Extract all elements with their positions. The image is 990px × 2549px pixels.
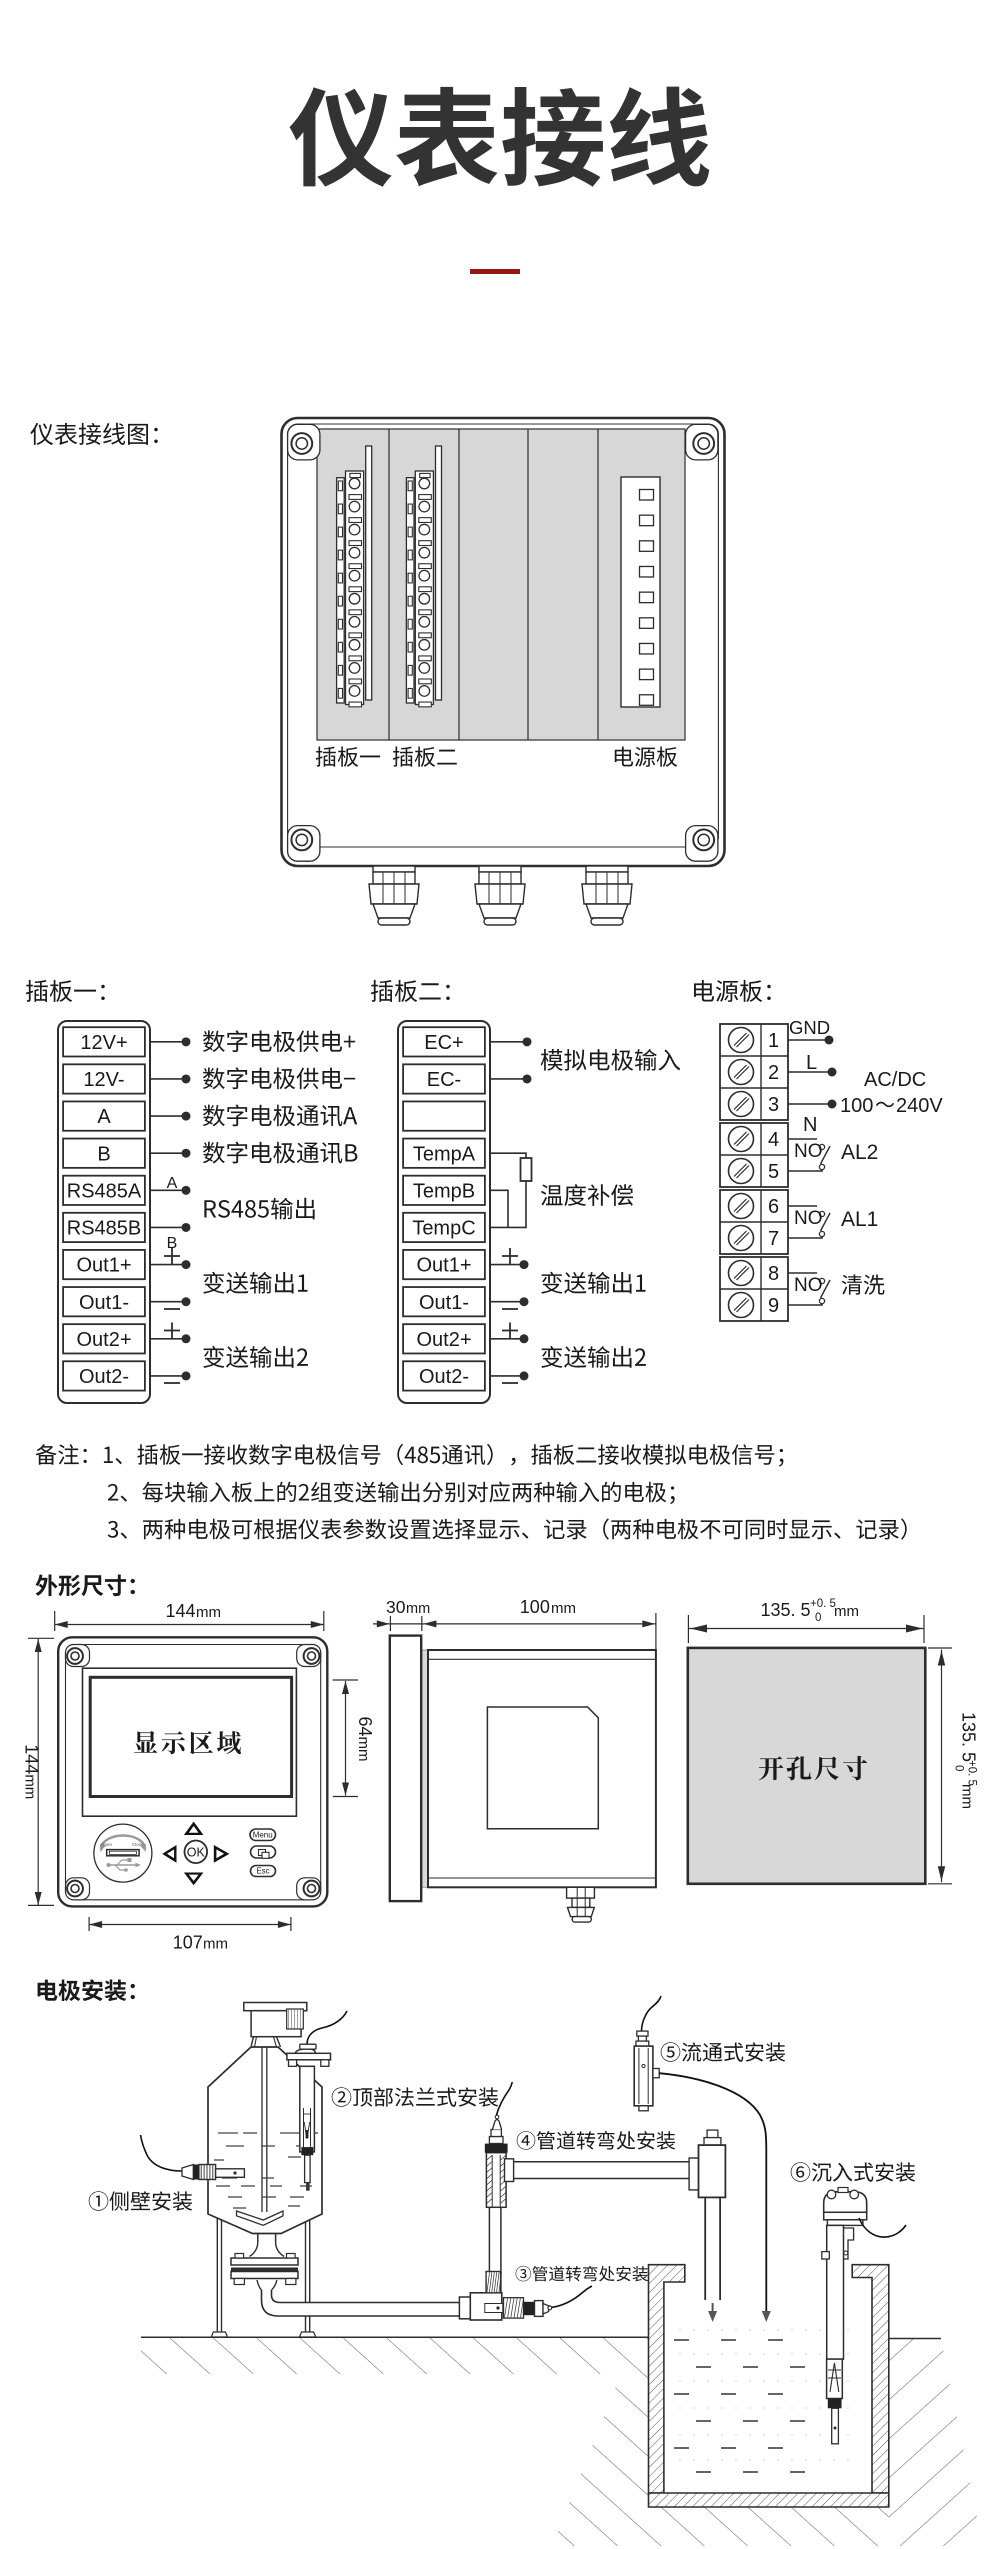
svg-text:mm: mm	[551, 1600, 576, 1617]
svg-text:135. 5: 135. 5	[959, 1712, 979, 1762]
svg-text:Out1+: Out1+	[76, 1255, 131, 1277]
svg-text:2: 2	[768, 1062, 779, 1084]
svg-text:1: 1	[768, 1030, 779, 1052]
svg-text:240V: 240V	[896, 1095, 943, 1117]
svg-text:+0. 5: +0. 5	[966, 1760, 978, 1786]
svg-text:RS485B: RS485B	[67, 1218, 142, 1240]
svg-text:N: N	[803, 1114, 817, 1136]
svg-text:6: 6	[768, 1196, 779, 1218]
svg-text:AC/DC: AC/DC	[864, 1069, 926, 1091]
svg-text:144: 144	[166, 1601, 196, 1621]
svg-text:mm: mm	[834, 1603, 859, 1620]
svg-text:Out1+: Out1+	[416, 1255, 471, 1277]
svg-text:mm: mm	[203, 1936, 228, 1953]
svg-text:TempC: TempC	[412, 1218, 475, 1240]
svg-text:OK: OK	[187, 1845, 206, 1859]
svg-text:100: 100	[840, 1095, 873, 1117]
svg-text:Out2-: Out2-	[419, 1366, 469, 1388]
svg-text:Close: Close	[132, 1842, 144, 1847]
svg-text:Out2-: Out2-	[79, 1366, 129, 1388]
svg-text:A: A	[97, 1106, 111, 1128]
svg-text:Out2+: Out2+	[76, 1329, 131, 1351]
svg-text:A: A	[167, 1175, 178, 1192]
svg-text:Out1-: Out1-	[79, 1292, 129, 1314]
svg-text:Open: Open	[101, 1842, 113, 1847]
svg-text:0: 0	[815, 1612, 821, 1624]
svg-text:TempB: TempB	[413, 1180, 475, 1202]
svg-text:Menu: Menu	[253, 1830, 273, 1839]
svg-text:AL1: AL1	[841, 1208, 878, 1231]
svg-text:30: 30	[386, 1597, 406, 1617]
svg-text:NO: NO	[794, 1208, 823, 1229]
svg-text:5: 5	[768, 1161, 779, 1183]
svg-text:12V+: 12V+	[80, 1032, 127, 1054]
svg-text:mm: mm	[959, 1784, 976, 1809]
svg-text:144mm: 144mm	[22, 1744, 42, 1799]
svg-text:3: 3	[768, 1094, 779, 1116]
svg-text:NO: NO	[794, 1141, 823, 1162]
svg-text:RS485A: RS485A	[67, 1180, 142, 1202]
svg-text:mm: mm	[196, 1604, 221, 1621]
svg-text:Out1-: Out1-	[419, 1292, 469, 1314]
svg-text:GND: GND	[789, 1017, 830, 1038]
svg-text:L: L	[806, 1052, 817, 1074]
svg-text:64mm: 64mm	[355, 1716, 375, 1761]
svg-text:B: B	[97, 1143, 110, 1165]
svg-text:9: 9	[768, 1295, 779, 1317]
svg-text:+0. 5: +0. 5	[810, 1598, 836, 1610]
svg-text:107: 107	[173, 1933, 203, 1953]
svg-text:100: 100	[520, 1597, 550, 1617]
svg-text:mm: mm	[406, 1601, 430, 1617]
svg-text:TempA: TempA	[413, 1143, 476, 1165]
svg-text:4: 4	[768, 1129, 779, 1151]
svg-text:Out2+: Out2+	[416, 1329, 471, 1351]
svg-text:135. 5: 135. 5	[761, 1600, 811, 1620]
svg-text:EC+: EC+	[424, 1032, 463, 1054]
svg-text:8: 8	[768, 1263, 779, 1285]
svg-text:Esc: Esc	[256, 1866, 269, 1875]
svg-text:NO: NO	[794, 1275, 823, 1296]
svg-text:7: 7	[768, 1228, 779, 1250]
svg-text:AL2: AL2	[841, 1141, 878, 1164]
svg-text:12V-: 12V-	[83, 1069, 124, 1091]
svg-text:0: 0	[953, 1765, 965, 1771]
svg-text:EC-: EC-	[427, 1069, 461, 1091]
